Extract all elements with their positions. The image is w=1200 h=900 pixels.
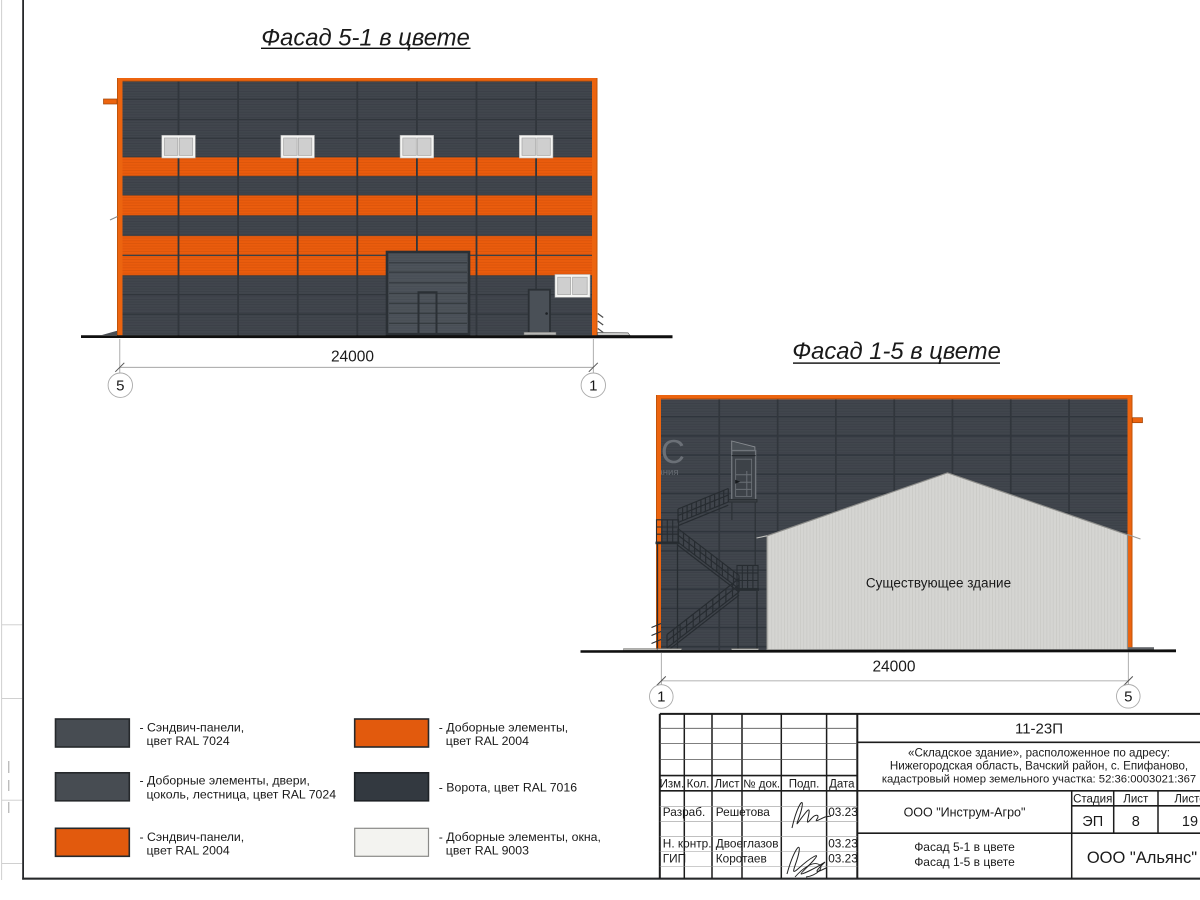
svg-text:Листо: Листо	[1174, 793, 1200, 805]
svg-text:цвет RAL 9003: цвет RAL 9003	[446, 843, 529, 857]
svg-text:Фасад 1-5 в цвете: Фасад 1-5 в цвете	[792, 338, 1001, 365]
svg-text:кадастровый номер земельного у: кадастровый номер земельного участка: 52…	[882, 774, 1196, 786]
svg-text:11-23П: 11-23П	[1015, 721, 1063, 738]
svg-text:Дата: Дата	[829, 778, 855, 790]
svg-text:цоколь, лестница, цвет RAL 702: цоколь, лестница, цвет RAL 7024	[147, 787, 337, 801]
svg-text:1: 1	[589, 378, 597, 395]
svg-text:1: 1	[657, 689, 665, 706]
svg-text:№ док.: № док.	[743, 778, 780, 790]
svg-text:ООО "Инструм-Агро": ООО "Инструм-Агро"	[904, 806, 1026, 820]
svg-text:ГИП: ГИП	[663, 851, 686, 865]
svg-text:Решетова: Решетова	[716, 805, 771, 819]
svg-text:24000: 24000	[872, 658, 915, 675]
svg-text:цвет RAL 7024: цвет RAL 7024	[147, 734, 230, 748]
svg-text:19: 19	[1182, 814, 1198, 830]
svg-text:- Доборные элементы, окна,: - Доборные элементы, окна,	[439, 830, 601, 844]
svg-text:Стадия: Стадия	[1073, 793, 1112, 805]
svg-text:«Складское здание», расположен: «Складское здание», расположенное по адр…	[908, 747, 1170, 760]
svg-text:- Ворота, цвет RAL 7016: - Ворота, цвет RAL 7016	[439, 781, 577, 795]
svg-text:ООО "Альянс": ООО "Альянс"	[1087, 849, 1197, 867]
svg-text:Фасад 1-5 в цвете: Фасад 1-5 в цвете	[914, 855, 1015, 869]
svg-text:03.23: 03.23	[828, 851, 858, 865]
svg-text:5: 5	[116, 378, 124, 395]
svg-text:Лист: Лист	[1123, 793, 1149, 805]
svg-text:Двоеглазов: Двоеглазов	[716, 836, 779, 850]
svg-text:Фасад 5-1 в цвете: Фасад 5-1 в цвете	[914, 840, 1015, 854]
svg-text:- Сэндвич-панели,: - Сэндвич-панели,	[140, 720, 245, 734]
svg-text:Фасад 5-1 в цвете: Фасад 5-1 в цвете	[261, 25, 470, 52]
svg-text:8: 8	[1132, 814, 1140, 830]
svg-text:24000: 24000	[331, 348, 374, 365]
svg-text:цвет RAL 2004: цвет RAL 2004	[147, 843, 230, 857]
svg-text:03.23: 03.23	[828, 805, 858, 819]
svg-text:Лист: Лист	[715, 778, 741, 790]
svg-text:Нижегородская область, Вачский: Нижегородская область, Вачский район, с.…	[890, 760, 1188, 773]
svg-text:5: 5	[1124, 689, 1132, 706]
svg-text:Подп.: Подп.	[789, 778, 820, 790]
svg-text:Изм.: Изм.	[660, 778, 685, 790]
svg-text:- Сэндвич-панели,: - Сэндвич-панели,	[140, 830, 245, 844]
svg-text:03.23: 03.23	[828, 836, 858, 850]
svg-text:Кол.: Кол.	[687, 778, 710, 790]
svg-text:цвет RAL 2004: цвет RAL 2004	[446, 734, 529, 748]
svg-text:- Доборные элементы, двери,: - Доборные элементы, двери,	[140, 774, 310, 788]
svg-text:ЭП: ЭП	[1082, 814, 1103, 830]
svg-text:Существующее здание: Существующее здание	[866, 576, 1011, 591]
svg-text:С: С	[661, 433, 685, 470]
svg-text:Коротаев: Коротаев	[716, 851, 767, 865]
svg-text:- Доборные элементы,: - Доборные элементы,	[439, 720, 568, 734]
svg-text:Разраб.: Разраб.	[663, 805, 705, 819]
svg-text:Н. контр.: Н. контр.	[663, 836, 712, 850]
